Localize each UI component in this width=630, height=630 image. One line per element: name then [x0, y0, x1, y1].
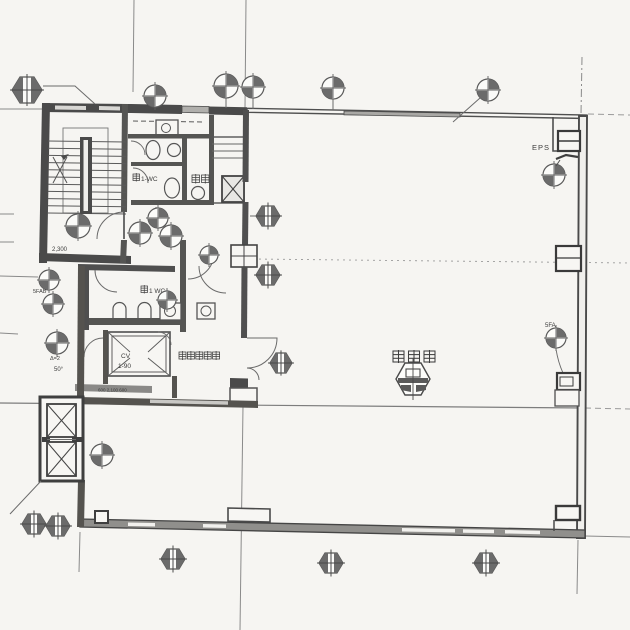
svg-text:2,300: 2,300 — [52, 247, 68, 253]
svg-text:1-WC: 1-WC — [141, 176, 158, 183]
svg-text:5FAB: 5FAB — [33, 289, 47, 295]
svg-text:CV: CV — [121, 353, 131, 360]
svg-text:EPS: EPS — [532, 143, 550, 152]
svg-text:1-90: 1-90 — [118, 363, 131, 370]
svg-text:600 2,100 600: 600 2,100 600 — [98, 388, 127, 393]
svg-text:Δ=2: Δ=2 — [50, 356, 60, 362]
svg-text:50°: 50° — [54, 367, 64, 373]
